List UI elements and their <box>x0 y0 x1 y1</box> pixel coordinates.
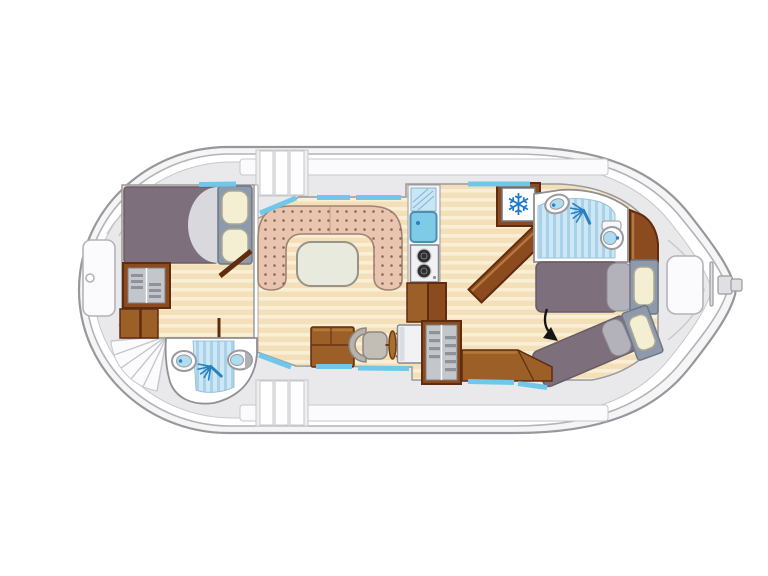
bow-cabin <box>120 185 254 338</box>
bow-entry-steps <box>120 309 158 338</box>
bow-double-bed <box>124 186 252 264</box>
window-stern-cabin-bottom-1 <box>468 382 514 383</box>
transom-line <box>710 262 713 306</box>
dinette-table <box>297 242 358 286</box>
bow-shower-floor <box>193 341 234 392</box>
bow-wardrobe <box>123 263 170 308</box>
helm-chair-seat <box>363 332 387 359</box>
stern-toilet <box>601 221 623 249</box>
galley-base-cabinets <box>407 283 446 322</box>
stern-bed-upper-pillow <box>634 267 654 305</box>
stern-bed-upper-blanket <box>536 262 618 312</box>
stern-bed-upper <box>536 260 658 314</box>
galley-drainer <box>411 188 436 211</box>
stern-deck-locker <box>667 256 703 314</box>
helm-chair <box>349 328 387 362</box>
fridge-snowflake-icon: ❄ <box>506 188 531 223</box>
bow-sink <box>172 351 196 371</box>
helm-console <box>398 325 424 363</box>
stern-bed-upper-duvet <box>607 263 633 311</box>
bow-bed-pillow-1 <box>222 191 248 224</box>
helm-bench <box>311 327 354 367</box>
boat-floorplan-image: ❄ <box>0 0 768 576</box>
helm-shelf-cabinet <box>422 321 461 384</box>
rudder-tiller-tip <box>731 279 742 291</box>
boat-floorplan-page: ❄ <box>0 0 768 576</box>
saloon-dinette <box>258 206 402 290</box>
bow-toilet <box>228 351 252 370</box>
window-saloon-bottom-2 <box>358 368 409 369</box>
galley-sink <box>411 212 437 242</box>
boarding-panel-bottom <box>256 380 308 426</box>
boarding-panel-top <box>256 150 308 196</box>
window-bow-cabin-top <box>199 184 236 185</box>
bow-gate-handle <box>86 274 94 282</box>
galley-stove <box>411 245 439 282</box>
rudder-tiller-arm <box>718 276 732 294</box>
